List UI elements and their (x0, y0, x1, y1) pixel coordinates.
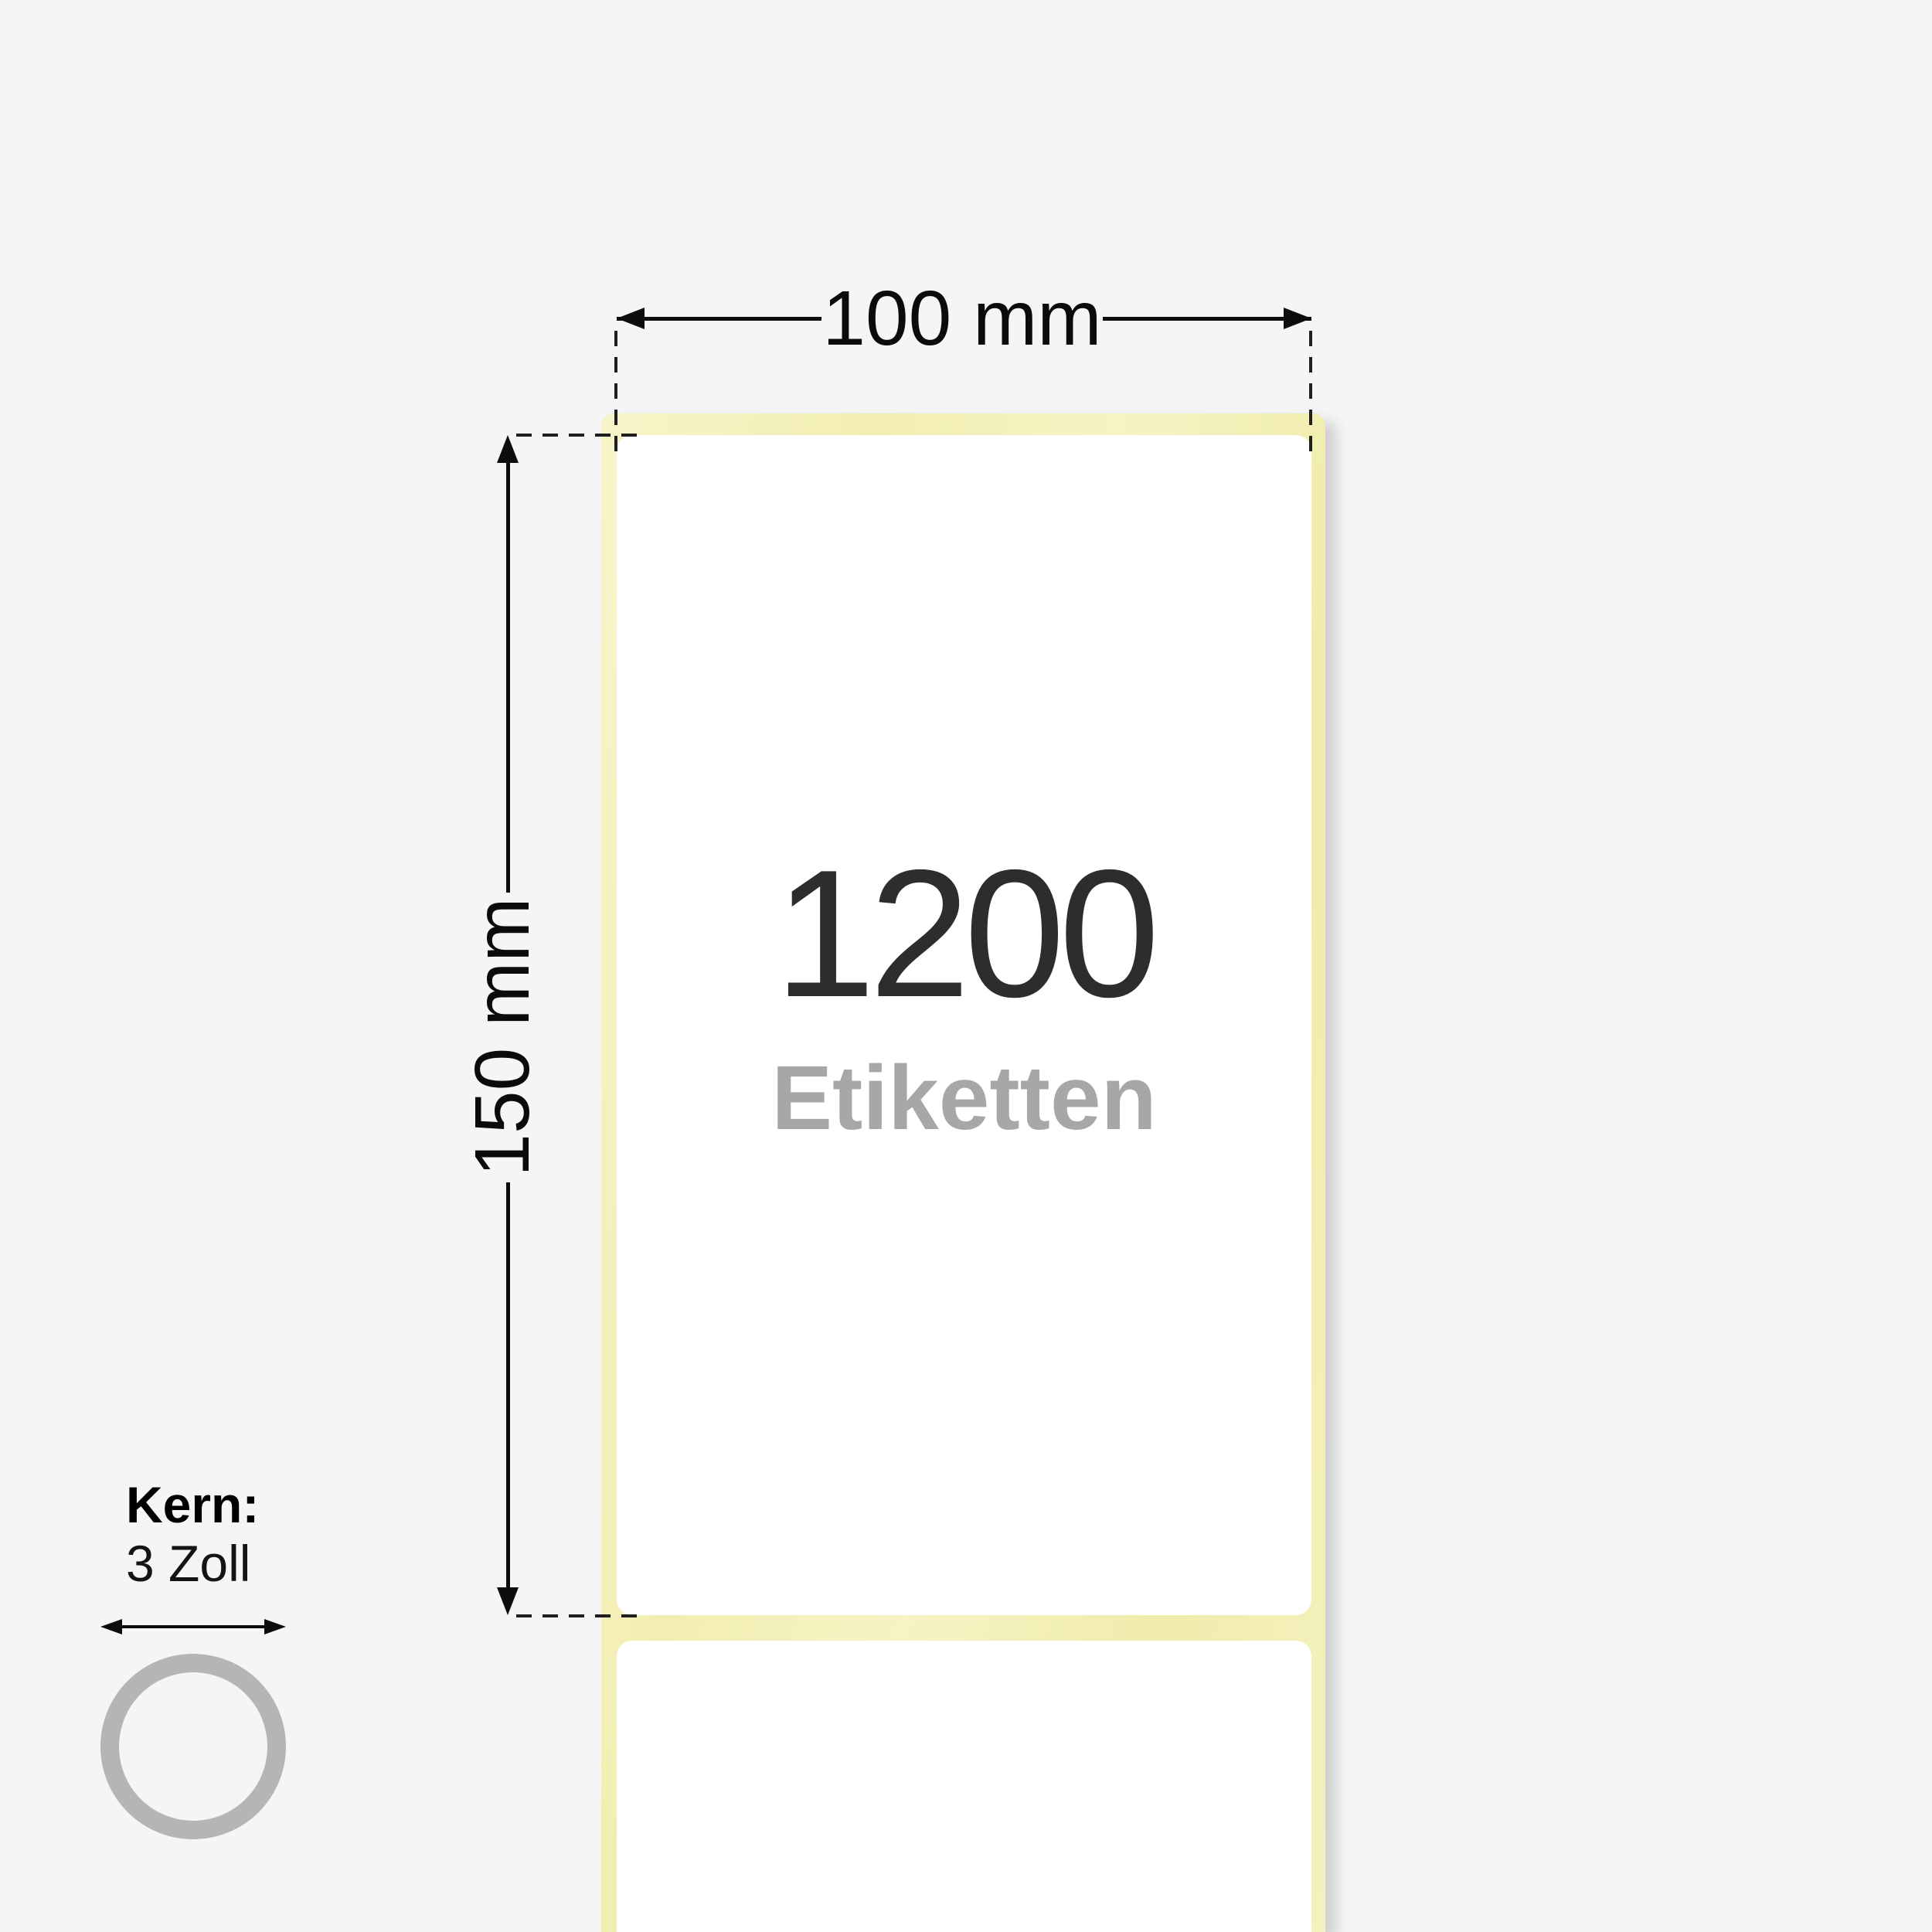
height-arrowhead-up-icon (497, 435, 519, 463)
height-dimension-line-lower (506, 1182, 510, 1587)
width-dimension-label: 100 mm (821, 277, 1103, 360)
core-arrowhead-right-icon (264, 1619, 286, 1634)
label-blank-second (617, 1641, 1311, 1932)
height-arrowhead-down-icon (497, 1587, 519, 1615)
core-title: Kern: (126, 1476, 259, 1533)
width-dimension-line-right (1103, 317, 1311, 321)
label-count-value: 1200 (617, 842, 1311, 1024)
core-size-value: 3 Zoll (126, 1535, 250, 1592)
height-extension-dashed-line-top (516, 434, 641, 437)
label-product-diagram: 1200 Etiketten 100 mm 150 mm Kern: 3 Zol… (0, 0, 1932, 1932)
width-arrowhead-left-icon (617, 308, 645, 329)
label-count-unit: Etiketten (617, 1053, 1311, 1144)
width-extension-dashed-line-right (1309, 331, 1312, 457)
core-ring-icon (100, 1654, 286, 1839)
width-arrowhead-right-icon (1284, 308, 1311, 329)
height-dimension-line-upper (506, 461, 510, 893)
height-dimension-label: 150 mm (460, 883, 545, 1192)
height-extension-dashed-line-bottom (516, 1614, 641, 1617)
width-dimension-line-left (617, 317, 821, 321)
core-diameter-arrow-line (116, 1625, 270, 1628)
width-extension-dashed-line-left (614, 331, 617, 457)
core-arrowhead-left-icon (100, 1619, 122, 1634)
